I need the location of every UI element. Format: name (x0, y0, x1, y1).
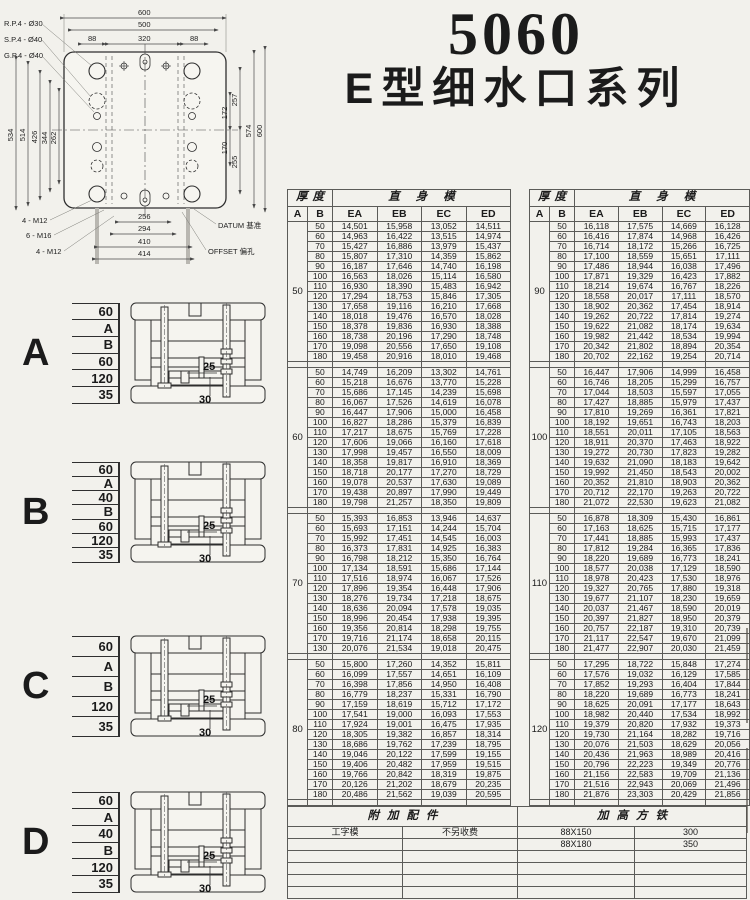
b-value: 180 (308, 352, 333, 362)
price-value: 18,212 (377, 554, 422, 564)
price-value: 17,111 (662, 292, 706, 302)
spec-row: 6017,57619,03216,12917,585 (530, 670, 750, 680)
price-value: 17,924 (333, 720, 378, 730)
spec-row: 16019,98221,44218,53419,994 (530, 332, 750, 342)
price-value: 18,559 (618, 252, 662, 262)
spec-row: 7015,68617,14514,23915,698 (288, 388, 511, 398)
spec-row: 6015,69317,15114,24415,704 (288, 524, 511, 534)
price-value: 18,885 (618, 398, 662, 408)
b-value: 150 (308, 760, 333, 770)
price-value: 19,293 (618, 680, 662, 690)
price-value: 19,449 (466, 488, 511, 498)
price-value: 21,156 (575, 770, 619, 780)
spec-row: 10016,82718,28615,37916,839 (288, 418, 511, 428)
price-value: 16,093 (422, 710, 467, 720)
spec-row: 13019,27220,73017,82319,282 (530, 448, 750, 458)
price-value: 14,244 (422, 524, 467, 534)
spec-row: 705015,39316,85313,94614,637 (288, 514, 511, 524)
price-value: 18,230 (662, 594, 706, 604)
dim-label-A: A (72, 808, 118, 825)
spacer-cell (618, 800, 662, 806)
b-value: 60 (550, 378, 575, 388)
right-spec-table-wrap: 厚度直身模ABEAEBECED905016,11817,57514,66916,… (529, 189, 750, 806)
price-value: 14,740 (422, 262, 467, 272)
spec-row: 18021,87623,30320,42921,856 (530, 790, 750, 800)
b-value: 70 (550, 388, 575, 398)
dim-344: 344 (40, 132, 49, 145)
accessories-row (288, 887, 747, 899)
column-header-EA: EA (333, 207, 378, 222)
accessories-cell (635, 887, 747, 899)
dimension-ladder: 60AB12035 (72, 636, 120, 737)
spec-row: 15019,40620,48217,95919,515 (288, 760, 511, 770)
price-value: 18,722 (618, 660, 662, 670)
b-value: 90 (308, 554, 333, 564)
price-value: 18,625 (618, 524, 662, 534)
price-value: 17,290 (422, 332, 467, 342)
block-a-value: 110 (530, 514, 550, 654)
price-value: 17,530 (662, 574, 706, 584)
spec-row: 18019,45820,91618,01019,468 (288, 352, 511, 362)
block-a-value: 90 (530, 222, 550, 362)
b-value: 80 (308, 690, 333, 700)
dim-label-A: A (72, 656, 118, 676)
b-value: 150 (550, 614, 575, 624)
accessories-cell: 350 (635, 839, 747, 851)
price-value: 19,875 (466, 770, 511, 780)
b-value: 140 (550, 604, 575, 614)
thickness-header: 厚度 (288, 190, 333, 207)
price-value: 17,821 (706, 408, 750, 418)
spec-row: 16019,35620,81418,29819,755 (288, 624, 511, 634)
spec-row: 1205017,29518,72215,84817,274 (530, 660, 750, 670)
catalog-page: { "title": { "code": "5060", "series": "… (0, 0, 750, 900)
b-value: 180 (550, 352, 575, 362)
price-value: 19,269 (618, 408, 662, 418)
price-value: 13,770 (422, 378, 467, 388)
price-value: 15,331 (422, 690, 467, 700)
price-value: 17,599 (422, 750, 467, 760)
price-value: 20,765 (618, 584, 662, 594)
technical-drawing: 600 500 320 88 88 534 514 426 344 262 25… (2, 4, 284, 294)
accessories-cell (403, 863, 518, 875)
straight-body-header: 直身模 (333, 190, 511, 207)
price-value: 18,192 (575, 418, 619, 428)
spec-row: 13018,27619,73417,21818,675 (288, 594, 511, 604)
spec-row: 8016,77918,23715,33116,790 (288, 690, 511, 700)
accessories-row (288, 851, 747, 863)
price-value: 17,553 (466, 710, 511, 720)
price-value: 19,515 (466, 760, 511, 770)
price-value: 17,880 (662, 584, 706, 594)
price-value: 14,999 (662, 368, 706, 378)
price-value: 17,896 (333, 584, 378, 594)
spec-row: 9018,22019,68916,77318,241 (530, 554, 750, 564)
price-value: 17,486 (575, 262, 619, 272)
price-value: 15,704 (466, 524, 511, 534)
accessories-cell (403, 839, 518, 851)
spacer-cell (662, 800, 706, 806)
b-value: 100 (550, 272, 575, 282)
price-value: 17,145 (377, 388, 422, 398)
price-value: 18,220 (575, 690, 619, 700)
price-value: 21,099 (706, 634, 750, 644)
spacer-cell (377, 800, 422, 806)
scan-edge-artifact (746, 748, 748, 833)
spec-row: 12018,30519,38216,85718,314 (288, 730, 511, 740)
price-value: 20,002 (706, 468, 750, 478)
price-value: 19,677 (575, 594, 619, 604)
price-value: 18,358 (333, 458, 378, 468)
b-value: 90 (550, 700, 575, 710)
price-value: 18,319 (422, 770, 467, 780)
dim-label-40: 40 (72, 490, 118, 504)
b-value: 70 (550, 242, 575, 252)
price-value: 20,423 (618, 574, 662, 584)
price-value: 20,076 (575, 740, 619, 750)
price-value: 16,563 (333, 272, 378, 282)
b-value: 50 (308, 514, 333, 524)
price-value: 19,155 (466, 750, 511, 760)
price-value: 21,534 (377, 644, 422, 654)
diagram-A: A 60AB6012035 (12, 297, 274, 409)
b-value: 180 (550, 498, 575, 508)
price-value: 20,115 (466, 634, 511, 644)
b-value: 140 (550, 750, 575, 760)
spec-row: 14018,01819,47616,57018,028 (288, 312, 511, 322)
thread-label-3: 4 - M12 (36, 247, 61, 256)
b-value: 70 (308, 242, 333, 252)
price-value: 19,716 (333, 634, 378, 644)
price-value: 19,356 (333, 624, 378, 634)
price-value: 17,044 (575, 388, 619, 398)
price-value: 16,099 (333, 670, 378, 680)
accessories-cell: 88X150 (518, 827, 635, 839)
price-value: 18,944 (618, 262, 662, 272)
price-value: 17,437 (706, 398, 750, 408)
accessories-cell (518, 863, 635, 875)
price-value: 20,757 (575, 624, 619, 634)
b-value: 110 (550, 574, 575, 584)
scan-edge-artifact (746, 628, 748, 723)
price-value: 17,856 (377, 680, 422, 690)
spec-row: 7017,44118,88515,99317,437 (530, 534, 750, 544)
b-value: 110 (550, 282, 575, 292)
price-value: 18,214 (575, 282, 619, 292)
spec-row: 13020,07621,53419,01820,475 (288, 644, 511, 654)
spec-row: 7016,71418,17215,26616,725 (530, 242, 750, 252)
price-value: 16,209 (377, 368, 422, 378)
price-value: 20,486 (333, 790, 378, 800)
b-value: 120 (550, 438, 575, 448)
b-value: 160 (550, 478, 575, 488)
price-value: 19,382 (377, 730, 422, 740)
price-value: 16,798 (333, 554, 378, 564)
price-value: 21,174 (377, 634, 422, 644)
price-value: 17,111 (706, 252, 750, 262)
price-value: 20,436 (575, 750, 619, 760)
column-header-ED: ED (466, 207, 511, 222)
price-value: 16,743 (662, 418, 706, 428)
spec-row: 9018,62520,09117,17718,643 (530, 700, 750, 710)
dim-label-120: 120 (72, 858, 118, 875)
price-value: 20,235 (466, 780, 511, 790)
column-header-EB: EB (618, 207, 662, 222)
price-value: 19,274 (706, 312, 750, 322)
price-value: 17,874 (618, 232, 662, 242)
price-value: 19,634 (706, 322, 750, 332)
price-value: 19,457 (377, 448, 422, 458)
spec-row: 8017,42718,88515,97917,437 (530, 398, 750, 408)
price-value: 21,496 (706, 780, 750, 790)
price-value: 16,160 (422, 438, 467, 448)
price-value: 17,935 (466, 720, 511, 730)
price-value: 14,501 (333, 222, 378, 232)
price-value: 20,352 (575, 478, 619, 488)
price-value: 19,310 (662, 624, 706, 634)
spec-row: 15019,62221,08218,17419,634 (530, 322, 750, 332)
price-value: 15,686 (422, 564, 467, 574)
dim-574: 574 (244, 125, 253, 138)
b-value: 70 (550, 534, 575, 544)
diagram-D: D 60A40B12035 (12, 786, 274, 898)
price-value: 17,177 (662, 700, 706, 710)
price-value: 16,398 (333, 680, 378, 690)
b-value: 160 (550, 624, 575, 634)
price-value: 18,658 (422, 634, 467, 644)
price-value: 18,976 (706, 574, 750, 584)
column-header-EC: EC (662, 207, 706, 222)
price-value: 16,827 (333, 418, 378, 428)
price-value: 19,982 (575, 332, 619, 342)
price-value: 18,369 (466, 458, 511, 468)
price-value: 17,836 (706, 544, 750, 554)
spec-row: 7017,85219,29316,40417,844 (530, 680, 750, 690)
spec-row: 6016,09917,55714,65116,109 (288, 670, 511, 680)
dim-262: 262 (49, 132, 58, 145)
accessories-row: 88X180350 (288, 839, 747, 851)
price-value: 16,757 (706, 378, 750, 388)
accessories-cell (288, 851, 403, 863)
price-value: 19,798 (333, 498, 378, 508)
b-value: 80 (550, 544, 575, 554)
b-value: 50 (308, 222, 333, 232)
dim-410: 410 (138, 237, 151, 246)
b-value: 110 (550, 720, 575, 730)
price-value: 15,993 (662, 534, 706, 544)
price-value: 17,454 (662, 302, 706, 312)
price-value: 17,441 (575, 534, 619, 544)
accessories-row: 工字模不另收费88X150300 (288, 827, 747, 839)
dim-label-35: 35 (72, 716, 118, 736)
price-value: 15,811 (466, 660, 511, 670)
price-value: 15,379 (422, 418, 467, 428)
b-value: 170 (550, 342, 575, 352)
price-value: 20,122 (377, 750, 422, 760)
spec-row: 11018,55120,01117,10518,563 (530, 428, 750, 438)
price-value: 16,067 (333, 398, 378, 408)
price-value: 18,534 (662, 332, 706, 342)
price-value: 17,134 (333, 564, 378, 574)
price-value: 17,938 (422, 614, 467, 624)
price-value: 20,897 (377, 488, 422, 498)
price-value: 20,069 (662, 780, 706, 790)
b-value: 150 (550, 322, 575, 332)
price-value: 20,416 (706, 750, 750, 760)
dim-534: 534 (6, 129, 15, 142)
price-value: 17,228 (466, 428, 511, 438)
b-value: 180 (308, 790, 333, 800)
accessories-cell (518, 887, 635, 899)
b-value: 180 (550, 644, 575, 654)
price-value: 19,263 (662, 488, 706, 498)
price-value: 17,606 (333, 438, 378, 448)
spec-row: 18021,07222,53019,62321,082 (530, 498, 750, 508)
price-value: 20,342 (575, 342, 619, 352)
spec-row: 18020,70222,16219,25420,714 (530, 352, 750, 362)
accessories-cell (403, 875, 518, 887)
price-value: 15,430 (662, 514, 706, 524)
b-value: 50 (308, 660, 333, 670)
column-header-B: B (550, 207, 575, 222)
price-value: 13,979 (422, 242, 467, 252)
price-value: 16,458 (466, 408, 511, 418)
dim-600-right: 600 (255, 125, 264, 138)
price-value: 19,395 (466, 614, 511, 624)
price-value: 17,305 (466, 292, 511, 302)
spec-row: 16019,07820,53717,63019,089 (288, 478, 511, 488)
column-header-A: A (288, 207, 308, 222)
b-value: 120 (550, 292, 575, 302)
dim-label-60: 60 (72, 353, 118, 370)
price-value: 16,118 (575, 222, 619, 232)
inner-dim-25: 25 (203, 361, 215, 373)
price-value: 19,406 (333, 760, 378, 770)
spec-row: 12017,29418,75315,84617,305 (288, 292, 511, 302)
b-value: 110 (308, 282, 333, 292)
b-value: 150 (550, 760, 575, 770)
dim-170: 170 (220, 142, 229, 155)
spacer-cell (308, 800, 333, 806)
offset-label: OFFSET 偏孔 (208, 246, 255, 256)
price-value: 16,422 (377, 232, 422, 242)
price-value: 19,066 (377, 438, 422, 448)
dim-426: 426 (30, 131, 39, 144)
price-value: 15,651 (662, 252, 706, 262)
price-value: 18,241 (706, 554, 750, 564)
price-value: 19,623 (662, 498, 706, 508)
dim-label-35: 35 (72, 875, 118, 892)
b-value: 80 (550, 252, 575, 262)
dim-500: 500 (138, 20, 151, 29)
b-value: 120 (308, 730, 333, 740)
spacer-cell (530, 800, 550, 806)
b-value: 80 (550, 398, 575, 408)
price-value: 21,876 (575, 790, 619, 800)
spec-row: 12019,32720,76517,88019,318 (530, 584, 750, 594)
price-value: 13,946 (422, 514, 467, 524)
price-value: 18,885 (618, 534, 662, 544)
dim-294: 294 (138, 224, 151, 233)
b-value: 140 (550, 312, 575, 322)
spec-row: 12018,91120,37017,46318,922 (530, 438, 750, 448)
price-value: 16,570 (422, 312, 467, 322)
price-value: 17,427 (575, 398, 619, 408)
price-value: 17,463 (662, 438, 706, 448)
dim-label-B: B (72, 676, 118, 696)
price-value: 16,128 (706, 222, 750, 232)
price-value: 15,483 (422, 282, 467, 292)
price-value: 18,350 (422, 498, 467, 508)
left-spec-table: 厚度直身模ABEAEBECED505014,50115,95813,05214,… (287, 189, 511, 806)
price-value: 15,769 (422, 428, 467, 438)
spec-row: 8016,37317,83114,92516,383 (288, 544, 511, 554)
block-a-value: 100 (530, 368, 550, 508)
accessories-cell (288, 887, 403, 899)
price-value: 14,761 (466, 368, 511, 378)
price-value: 18,982 (575, 710, 619, 720)
price-value: 20,730 (618, 448, 662, 458)
price-value: 15,862 (466, 252, 511, 262)
price-value: 17,310 (377, 252, 422, 262)
spec-row: 18021,47722,90720,03021,459 (530, 644, 750, 654)
price-value: 16,942 (466, 282, 511, 292)
price-value: 14,352 (422, 660, 467, 670)
price-value: 20,429 (662, 790, 706, 800)
spacer-cell (333, 800, 378, 806)
dim-label-120: 120 (72, 369, 118, 386)
price-value: 19,254 (662, 352, 706, 362)
b-value: 100 (550, 564, 575, 574)
spec-row: 15018,71820,17717,27018,729 (288, 468, 511, 478)
price-value: 17,294 (333, 292, 378, 302)
price-value: 20,739 (706, 624, 750, 634)
price-value: 19,651 (618, 418, 662, 428)
dim-256: 256 (138, 212, 151, 221)
spec-row: 7015,99217,45114,54516,003 (288, 534, 511, 544)
price-value: 18,570 (706, 292, 750, 302)
column-header-B: B (308, 207, 333, 222)
price-value: 18,738 (333, 332, 378, 342)
price-value: 18,679 (422, 780, 467, 790)
accessories-cell (288, 839, 403, 851)
model-code: 5060 (286, 4, 746, 64)
price-value: 17,959 (422, 760, 467, 770)
price-value: 18,543 (662, 468, 706, 478)
price-value: 18,619 (377, 700, 422, 710)
spec-row: 9016,79818,21215,35016,764 (288, 554, 511, 564)
dim-label-35: 35 (72, 547, 118, 561)
price-value: 19,078 (333, 478, 378, 488)
accessories-cell: 不另收费 (403, 827, 518, 839)
price-value: 18,729 (466, 468, 511, 478)
price-value: 15,698 (466, 388, 511, 398)
price-value: 17,658 (333, 302, 378, 312)
price-value: 14,511 (466, 222, 511, 232)
b-value: 70 (550, 680, 575, 690)
spec-row: 15018,99620,45417,93819,395 (288, 614, 511, 624)
b-value: 130 (308, 448, 333, 458)
b-value: 110 (550, 428, 575, 438)
price-value: 17,906 (618, 368, 662, 378)
b-value: 60 (308, 232, 333, 242)
price-value: 21,963 (618, 750, 662, 760)
price-value: 16,078 (466, 398, 511, 408)
block-a-value: 70 (288, 514, 308, 654)
b-value: 160 (308, 478, 333, 488)
block-a-value: 120 (530, 660, 550, 800)
price-value: 20,796 (575, 760, 619, 770)
